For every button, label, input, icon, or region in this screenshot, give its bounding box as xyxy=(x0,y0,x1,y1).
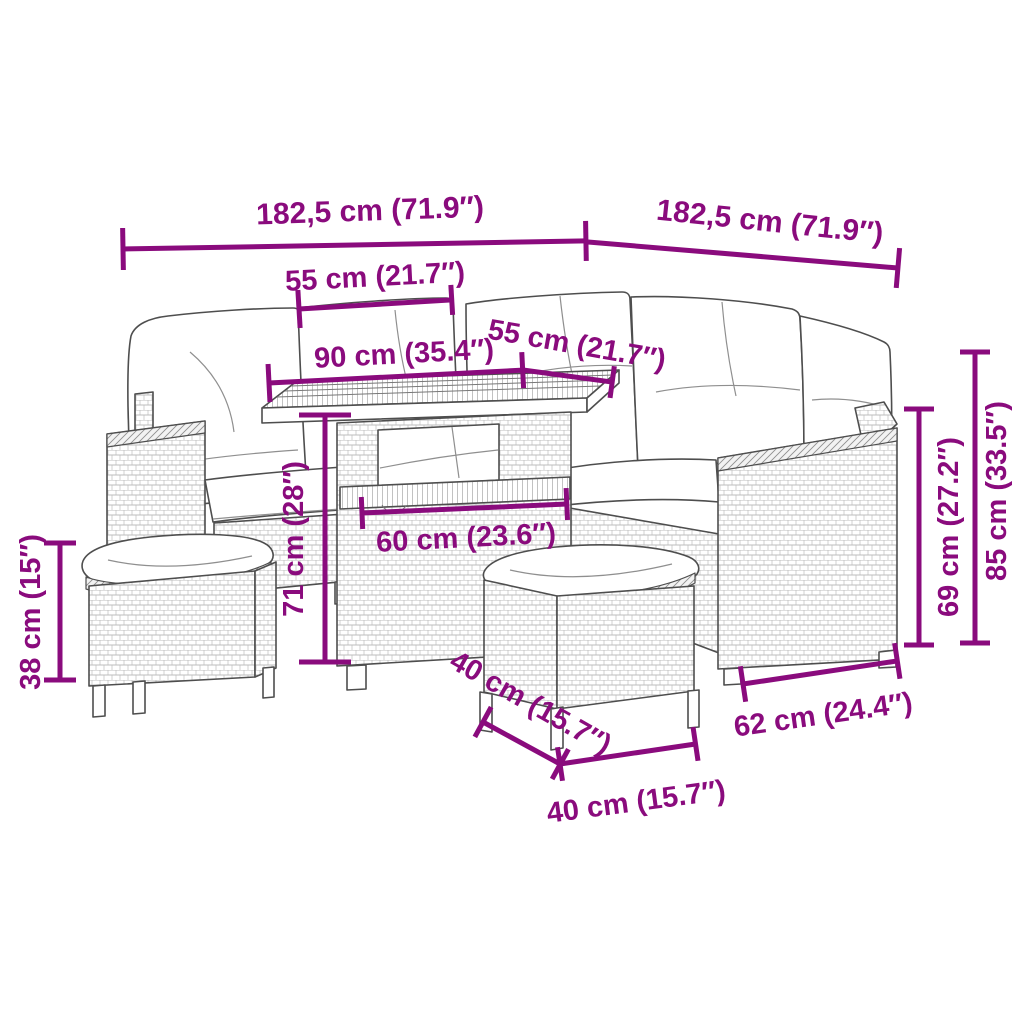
product-line-drawing: 182,5 cm (71.9″) 182,5 cm (71.9″) 55 cm … xyxy=(0,0,1024,1024)
seat-cushion-right xyxy=(556,459,719,506)
table-foot xyxy=(347,665,366,690)
dim-backrest-height-line xyxy=(904,409,934,645)
product-dimension-diagram: 182,5 cm (71.9″) 182,5 cm (71.9″) 55 cm … xyxy=(0,0,1024,1024)
dim-table-height-label: 71 cm (28″) xyxy=(278,461,310,617)
stool-leg xyxy=(93,685,105,717)
dim-overall-left-label: 182,5 cm (71.9″) xyxy=(256,191,485,232)
dim-seat-section-left-label: 55 cm (21.7″) xyxy=(284,256,465,297)
stool-left-front xyxy=(89,571,255,686)
dim-stool-height-line xyxy=(44,543,76,680)
dim-armrest-depth-label: 62 cm (24.4″) xyxy=(732,687,915,744)
stool-left-side xyxy=(255,562,276,677)
stool-right-front-right xyxy=(557,586,694,709)
dim-overall-right-label: 182,5 cm (71.9″) xyxy=(655,194,885,251)
stool-leg xyxy=(688,690,699,728)
stool-leg xyxy=(133,681,145,714)
dim-stool-width-label: 40 cm (15.7″) xyxy=(545,775,728,830)
sofa-foot xyxy=(724,668,741,685)
dim-stool-height-label: 38 cm (15″) xyxy=(15,534,47,690)
dim-backrest-height-label: 69 cm (27.2″) xyxy=(933,437,965,617)
dim-overall-height-label: 85 cm (33.5″) xyxy=(981,401,1013,581)
stool-left xyxy=(82,534,276,717)
back-cushion-4 xyxy=(631,297,804,467)
stool-leg xyxy=(263,667,274,698)
table-shelf-opening xyxy=(378,424,499,487)
